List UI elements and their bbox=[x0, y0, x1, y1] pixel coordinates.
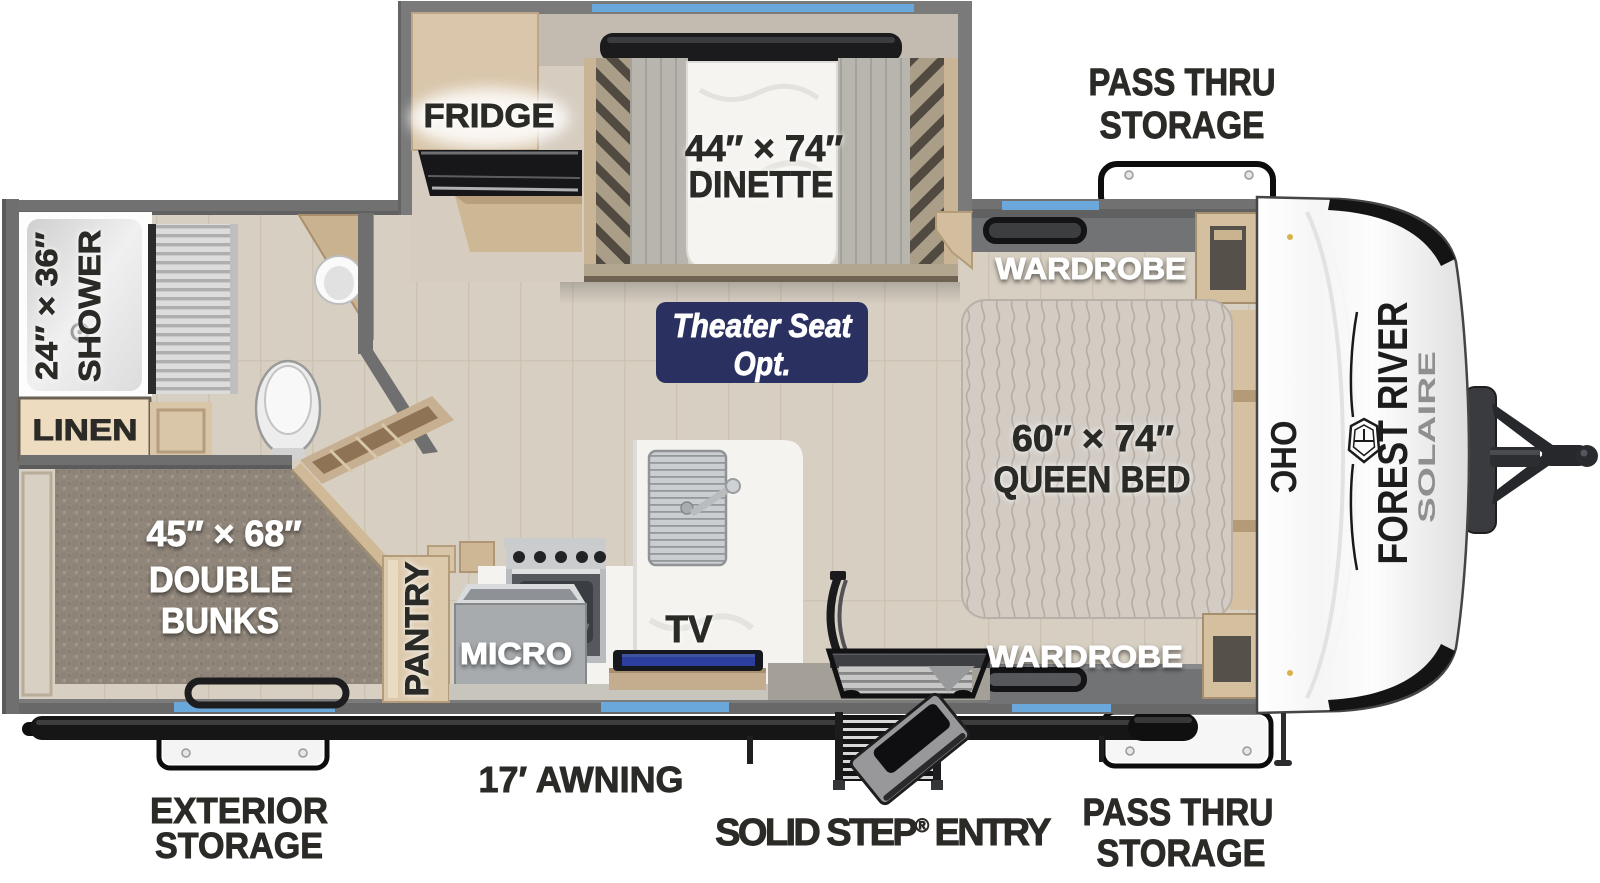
svg-text:24″ × 36″: 24″ × 36″ bbox=[29, 232, 64, 380]
svg-text:SHOWER: SHOWER bbox=[72, 230, 107, 382]
svg-text:WARDROBE: WARDROBE bbox=[987, 639, 1183, 674]
svg-text:TV: TV bbox=[666, 609, 714, 651]
svg-text:PASS THRU: PASS THRU bbox=[1083, 792, 1274, 834]
svg-text:LINEN: LINEN bbox=[33, 414, 138, 447]
svg-text:45″ × 68″: 45″ × 68″ bbox=[147, 513, 302, 554]
svg-text:44″ × 74″: 44″ × 74″ bbox=[685, 128, 843, 169]
svg-text:PASS THRU: PASS THRU bbox=[1089, 62, 1276, 104]
svg-text:SOLAIRE: SOLAIRE bbox=[1414, 351, 1441, 523]
svg-text:OHC: OHC bbox=[1263, 421, 1304, 494]
svg-text:STORAGE: STORAGE bbox=[1097, 833, 1266, 875]
svg-text:17′ AWNING: 17′ AWNING bbox=[479, 759, 684, 800]
svg-text:FRIDGE: FRIDGE bbox=[424, 97, 555, 134]
svg-text:SOLID STEP® ENTRY: SOLID STEP® ENTRY bbox=[715, 812, 1051, 854]
svg-text:Theater Seat: Theater Seat bbox=[673, 307, 854, 344]
svg-text:QUEEN BED: QUEEN BED bbox=[994, 459, 1191, 500]
svg-text:Opt.: Opt. bbox=[734, 345, 791, 382]
svg-text:MICRO: MICRO bbox=[460, 636, 572, 671]
svg-text:60″ × 74″: 60″ × 74″ bbox=[1012, 418, 1174, 459]
svg-text:STORAGE: STORAGE bbox=[155, 825, 323, 866]
svg-text:PANTRY: PANTRY bbox=[399, 562, 435, 697]
svg-text:DINETTE: DINETTE bbox=[689, 164, 834, 205]
svg-text:BUNKS: BUNKS bbox=[161, 600, 279, 641]
svg-text:STORAGE: STORAGE bbox=[1100, 105, 1265, 147]
svg-text:WARDROBE: WARDROBE bbox=[996, 251, 1187, 286]
svg-text:DOUBLE: DOUBLE bbox=[149, 559, 293, 600]
svg-text:FOREST RIVER: FOREST RIVER bbox=[1369, 302, 1416, 565]
